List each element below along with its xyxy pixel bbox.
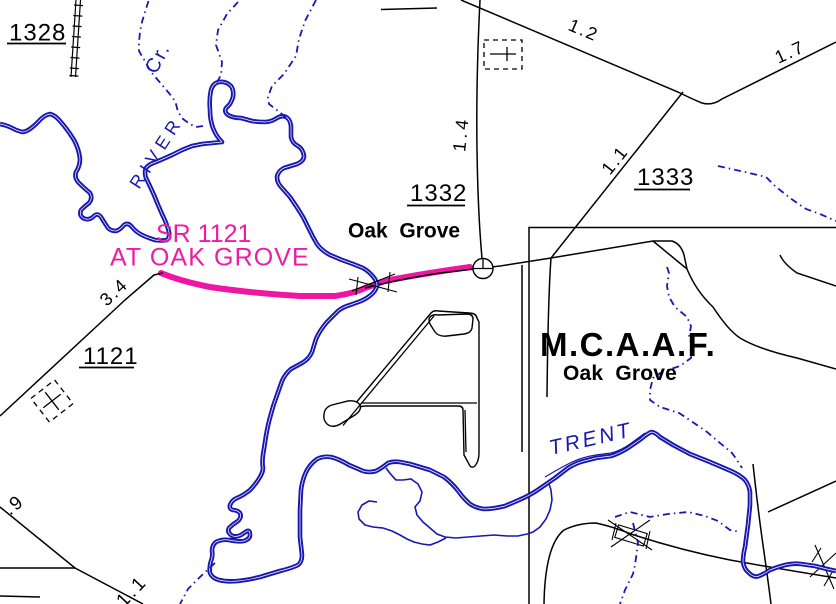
svg-text:AT OAK GROVE: AT OAK GROVE <box>110 244 310 272</box>
svg-text:1.4: 1.4 <box>449 115 473 152</box>
svg-text:Oak Grove: Oak Grove <box>563 362 677 385</box>
svg-text:Oak Grove: Oak Grove <box>348 220 460 243</box>
svg-text:1333: 1333 <box>637 164 694 191</box>
svg-text:1121: 1121 <box>83 343 139 370</box>
svg-text:1328: 1328 <box>9 20 66 47</box>
svg-text:M.C.A.A.F.: M.C.A.A.F. <box>540 326 716 363</box>
svg-text:1332: 1332 <box>410 180 467 207</box>
